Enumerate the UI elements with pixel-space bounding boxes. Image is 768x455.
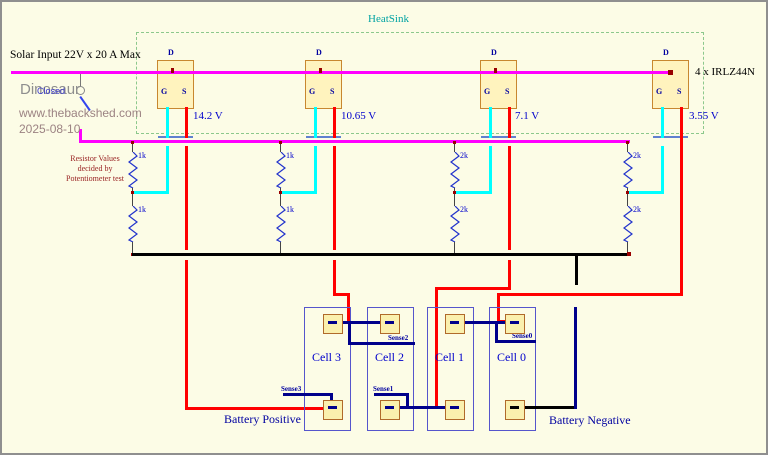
sense2-tap bbox=[348, 342, 415, 345]
source-wire-3 bbox=[508, 107, 511, 138]
cell3-positive-terminal bbox=[323, 314, 343, 334]
tap-voltage-1: 14.2 V bbox=[193, 110, 223, 122]
terminal-stub bbox=[328, 406, 337, 409]
gate-wire-4 bbox=[627, 191, 664, 194]
terminal-stub bbox=[385, 321, 394, 324]
terminal-stub bbox=[510, 321, 519, 324]
mosfet-4: G S bbox=[652, 60, 689, 109]
gate-wire-1 bbox=[166, 107, 169, 138]
cell0-terminal bbox=[505, 314, 525, 334]
heatsink-label: HeatSink bbox=[368, 13, 409, 25]
mosfet-4-drain-label: D bbox=[663, 48, 669, 57]
terminal-stub bbox=[385, 406, 394, 409]
switch-state-label: Closed bbox=[37, 86, 65, 96]
sense1-label: Sense1 bbox=[373, 385, 393, 393]
terminal-stub bbox=[450, 406, 459, 409]
gate-wire-1 bbox=[166, 146, 169, 194]
source-wire-3 bbox=[508, 146, 511, 250]
source-wire-1 bbox=[185, 107, 188, 138]
mosfet-1-gate-label: G bbox=[161, 87, 167, 96]
mosfet-2-source-label: S bbox=[330, 87, 334, 96]
terminal-stub bbox=[450, 321, 459, 324]
gate-wire-3 bbox=[489, 107, 492, 138]
gate-wire-4 bbox=[661, 146, 664, 194]
source-wire-3 bbox=[508, 260, 511, 290]
cell3-label: Cell 3 bbox=[304, 350, 349, 365]
terminal-stub bbox=[328, 321, 337, 324]
watermark-website: www.thebackshed.com bbox=[19, 106, 142, 120]
mosfet-1-drain-label: D bbox=[168, 48, 174, 57]
source-wire-2 bbox=[333, 260, 336, 296]
gate-wire-3 bbox=[489, 146, 492, 194]
mosfet-3-source-label: S bbox=[505, 87, 509, 96]
cell1-terminal bbox=[445, 400, 465, 420]
cell2-label: Cell 2 bbox=[367, 350, 412, 365]
junction-dot bbox=[171, 68, 174, 73]
tap-voltage-2: 10.65 V bbox=[341, 110, 376, 122]
gate-wire-1 bbox=[132, 191, 169, 194]
mosfet-1: G S bbox=[157, 60, 194, 109]
cell2-terminal bbox=[380, 400, 400, 420]
battery-negative-wire bbox=[574, 307, 577, 409]
resistor-value: 2k bbox=[633, 205, 641, 214]
resistor-value: 1k bbox=[286, 151, 294, 160]
resistor-note-line: decided by bbox=[54, 164, 136, 174]
gate-wire-2 bbox=[314, 146, 317, 194]
ground-bus bbox=[132, 253, 629, 256]
junction-dot bbox=[453, 141, 456, 144]
resistor-value: 2k bbox=[460, 151, 468, 160]
watermark-date: 2025-08-10 bbox=[19, 122, 80, 136]
resistor-value: 2k bbox=[633, 151, 641, 160]
battery-positive-label: Battery Positive bbox=[224, 412, 301, 427]
solar-rail-bottom bbox=[79, 140, 630, 143]
solar-input-label: Solar Input 22V x 20 A Max bbox=[10, 49, 141, 61]
sense3-label: Sense3 bbox=[281, 385, 301, 393]
resistor-value: 2k bbox=[460, 205, 468, 214]
junction-dot bbox=[131, 141, 134, 144]
resistor-note: Resistor Values decided by Potentiometer… bbox=[54, 154, 136, 184]
resistor-note-line: Potentiometer test bbox=[54, 174, 136, 184]
mosfet-3-drain-label: D bbox=[491, 48, 497, 57]
gate-wire-3 bbox=[454, 191, 492, 194]
mosfet-4-source-label: S bbox=[677, 87, 681, 96]
battery-negative-label: Battery Negative bbox=[549, 413, 631, 428]
mosfet-3-gate-label: G bbox=[484, 87, 490, 96]
sense2-label: Sense2 bbox=[388, 334, 408, 342]
junction-dot bbox=[626, 191, 629, 194]
source-wire-3 bbox=[435, 287, 511, 290]
sense3-tap bbox=[283, 393, 333, 396]
source-wire-2 bbox=[333, 146, 336, 250]
sense1-tap bbox=[406, 394, 409, 408]
mosfet-4-gate-label: G bbox=[656, 87, 662, 96]
tap-voltage-3: 7.1 V bbox=[515, 110, 539, 122]
mosfet-2-drain-label: D bbox=[316, 48, 322, 57]
junction-dot bbox=[131, 191, 134, 194]
sense0-tap bbox=[495, 340, 536, 343]
source-wire-1 bbox=[185, 146, 188, 250]
ground-drop-wire bbox=[575, 256, 578, 285]
sense2-tap bbox=[348, 323, 351, 344]
cell0-label: Cell 0 bbox=[489, 350, 534, 365]
junction-dot bbox=[453, 191, 456, 194]
junction-dot bbox=[627, 252, 631, 256]
terminal-stub bbox=[510, 406, 519, 409]
mosfet-part-label: 4 x IRLZ44N bbox=[695, 66, 755, 78]
resistor-value: 1k bbox=[286, 205, 294, 214]
gate-wire-4 bbox=[661, 107, 664, 138]
junction-dot bbox=[494, 68, 497, 73]
cell0-terminal bbox=[505, 400, 525, 420]
mosfet-1-source-label: S bbox=[182, 87, 186, 96]
cell1-label: Cell 1 bbox=[427, 350, 472, 365]
resistor-value: 1k bbox=[138, 205, 146, 214]
junction-dot bbox=[626, 141, 629, 144]
junction-dot bbox=[279, 141, 282, 144]
cell3-negative-terminal bbox=[323, 400, 343, 420]
resistor-value: 1k bbox=[138, 151, 146, 160]
tap-voltage-4: 3.55 V bbox=[689, 110, 719, 122]
resistor-note-line: Resistor Values bbox=[54, 154, 136, 164]
battery-negative-wire bbox=[522, 406, 577, 409]
source-wire-4 bbox=[497, 293, 683, 296]
mosfet-3: G S bbox=[480, 60, 517, 109]
gate-wire-2 bbox=[314, 107, 317, 138]
cell2-terminal bbox=[380, 314, 400, 334]
junction-dot bbox=[319, 68, 322, 73]
schematic-canvas: HeatSink G S D G S D G S D G S D bbox=[0, 0, 768, 455]
source-wire-1 bbox=[185, 260, 188, 410]
cell1-terminal bbox=[445, 314, 465, 334]
mosfet-2-gate-label: G bbox=[309, 87, 315, 96]
mosfet-2: G S bbox=[305, 60, 342, 109]
source-wire-2 bbox=[333, 107, 336, 138]
sense1-tap bbox=[374, 393, 409, 396]
junction-dot bbox=[279, 191, 282, 194]
gate-wire-2 bbox=[280, 191, 317, 194]
source-wire-4 bbox=[680, 107, 683, 296]
solar-rail-top bbox=[11, 71, 671, 74]
junction-dot bbox=[668, 70, 673, 75]
